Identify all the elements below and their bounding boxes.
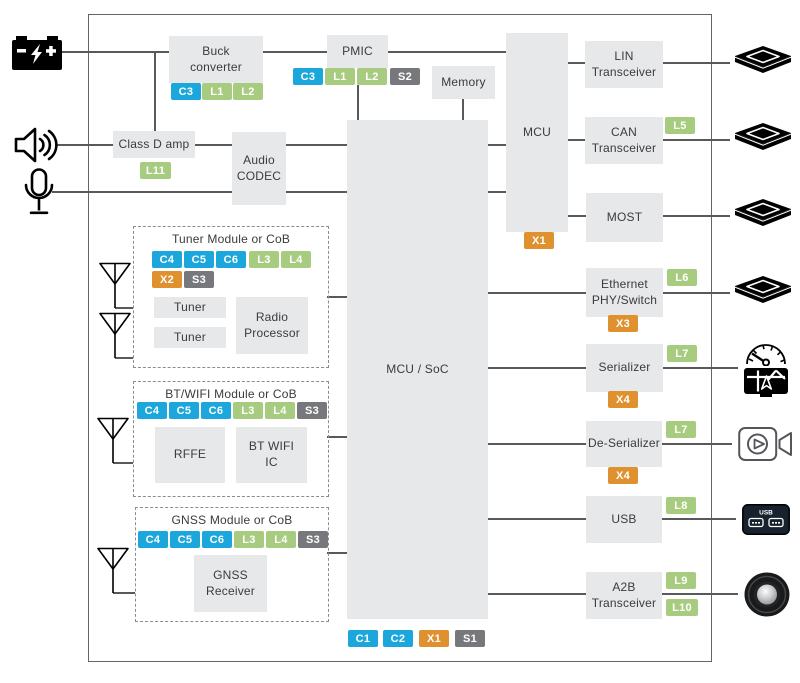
chip-l5: L5: [665, 117, 695, 134]
chip-l4: L4: [266, 531, 296, 548]
pmic-to-mcu: [388, 51, 506, 53]
block-gnss-receiver: GNSS Receiver: [194, 555, 267, 612]
chip-l2: L2: [357, 68, 387, 85]
infotainment-block-diagram: Tuner Module or CoBBT/WIFI Module or CoB…: [0, 0, 800, 683]
chip-c6: C6: [202, 531, 232, 548]
chip-l3: L3: [233, 402, 263, 419]
chip-x1: X1: [524, 232, 554, 249]
chip-c4: C4: [137, 402, 167, 419]
codec-to-mcusoc-1: [286, 144, 347, 146]
ethernet-to-ecu: [663, 292, 730, 294]
chip-x4: X4: [608, 467, 638, 484]
mcu-to-most: [568, 215, 586, 217]
ecu-module-icon-ethernet: [735, 276, 791, 310]
mcusoc-to-serializer: [488, 367, 586, 369]
memory-to-mcusoc: [462, 99, 464, 120]
chip-l3: L3: [234, 531, 264, 548]
chip-c5: C5: [169, 402, 199, 419]
chip-l9: L9: [666, 572, 696, 589]
car-battery-icon: [12, 36, 62, 70]
chip-s2: S2: [390, 68, 420, 85]
chip-l11: L11: [140, 162, 171, 179]
mcusoc-to-a2b: [488, 593, 586, 595]
speaker-to-amp: [57, 144, 113, 146]
chip-l1: L1: [325, 68, 355, 85]
chip-l2: L2: [233, 83, 263, 100]
block-tuner-1: Tuner: [154, 297, 226, 318]
usb-to-port: [662, 518, 736, 520]
serializer-to-display: [663, 367, 738, 369]
pmic-to-mcusoc: [357, 85, 359, 120]
chip-c6: C6: [216, 251, 246, 268]
chip-c1: C1: [348, 630, 378, 647]
mcusoc-to-ethernet: [488, 292, 586, 294]
chip-l7: L7: [666, 421, 696, 438]
chip-c6: C6: [201, 402, 231, 419]
chip-x4: X4: [608, 391, 638, 408]
block-memory: Memory: [432, 66, 495, 99]
block-serializer: Serializer: [586, 344, 663, 392]
chip-s3: S3: [298, 531, 328, 548]
subwoofer-icon: [744, 572, 790, 617]
bt-wifi-module-title: BT/WIFI Module or CoB: [134, 387, 328, 401]
codec-to-mcusoc-2: [286, 191, 347, 193]
amp-to-codec: [195, 144, 232, 146]
mcusoc-to-mcu-1: [488, 144, 506, 146]
battery-branch-to-amp: [154, 52, 156, 131]
a2b-to-speaker: [662, 593, 738, 595]
block-mcu: MCU: [506, 33, 568, 232]
lin-to-ecu: [663, 62, 730, 64]
block-audio-codec: Audio CODEC: [232, 132, 286, 205]
block-rffe: RFFE: [155, 427, 225, 483]
chip-c5: C5: [184, 251, 214, 268]
can-to-ecu: [663, 139, 730, 141]
gnss-module-title: GNSS Module or CoB: [136, 513, 328, 527]
gauge-icon: [744, 340, 788, 366]
mcusoc-to-usb: [488, 518, 586, 520]
chip-s1: S1: [455, 630, 485, 647]
most-to-ecu: [663, 215, 730, 217]
block-ethernet-phy-switch: Ethernet PHY/Switch: [586, 268, 663, 317]
chip-l10: L10: [666, 599, 698, 616]
chip-l7: L7: [667, 345, 697, 362]
block-class-d-amp: Class D amp: [113, 131, 195, 158]
chip-c4: C4: [138, 531, 168, 548]
chip-s3: S3: [297, 402, 327, 419]
antenna-icon-gnss: [96, 547, 130, 593]
video-camera-icon: [738, 426, 794, 462]
microphone-icon: [24, 168, 54, 216]
chip-l6: L6: [667, 269, 697, 286]
chip-l4: L4: [265, 402, 295, 419]
chip-c3: C3: [171, 83, 201, 100]
ecu-module-icon-most: [735, 199, 791, 233]
block-most: MOST: [586, 193, 663, 242]
block-pmic: PMIC: [327, 35, 388, 68]
speaker-icon: [14, 126, 58, 164]
mcu-to-lin: [568, 62, 585, 64]
block-bt-wifi-ic: BT WIFI IC: [236, 427, 307, 483]
nav-display-icon: [743, 368, 789, 399]
block-radio-processor: Radio Processor: [236, 297, 308, 354]
block-buck-converter: Buck converter: [169, 36, 263, 83]
block-de-serializer: De-Serializer: [586, 421, 662, 467]
chip-l8: L8: [666, 497, 696, 514]
chip-s3: S3: [184, 271, 214, 288]
tuner-to-mcusoc: [327, 296, 347, 298]
chip-l1: L1: [202, 83, 232, 100]
antenna-icon-tuner-2: [98, 312, 132, 358]
block-usb: USB: [586, 496, 662, 543]
block-lin-transceiver: LIN Transceiver: [585, 41, 663, 88]
btwifi-to-mcusoc: [327, 436, 347, 438]
svg-text:USB: USB: [759, 510, 773, 517]
mcusoc-to-deserializer: [488, 443, 586, 445]
tuner-module-title: Tuner Module or CoB: [134, 232, 328, 246]
mic-to-codec: [52, 191, 232, 193]
buck-to-pmic: [263, 51, 327, 53]
ecu-module-icon-lin: [735, 46, 791, 80]
mcu-to-can: [568, 139, 585, 141]
block-tuner-2: Tuner: [154, 327, 226, 348]
chip-x2: X2: [152, 271, 182, 288]
chip-c5: C5: [170, 531, 200, 548]
battery-to-buck: [60, 51, 169, 53]
block-a2b-transceiver: A2B Transceiver: [586, 572, 662, 619]
deserializer-to-camera: [662, 443, 732, 445]
antenna-icon-btwifi: [96, 417, 130, 463]
gnss-to-mcusoc: [327, 552, 347, 554]
chip-x3: X3: [608, 315, 638, 332]
antenna-icon-tuner-1: [98, 262, 132, 308]
chip-c2: C2: [383, 630, 413, 647]
chip-c3: C3: [293, 68, 323, 85]
ecu-module-icon-can: [735, 123, 791, 157]
block-can-transceiver: CAN Transceiver: [585, 117, 663, 164]
usb-port-icon: USB: [742, 504, 790, 535]
chip-l3: L3: [249, 251, 279, 268]
mcusoc-to-mcu-2: [488, 191, 506, 193]
chip-c4: C4: [152, 251, 182, 268]
chip-l4: L4: [281, 251, 311, 268]
chip-x1: X1: [419, 630, 449, 647]
block-mcu-soc: MCU / SoC: [347, 120, 488, 619]
